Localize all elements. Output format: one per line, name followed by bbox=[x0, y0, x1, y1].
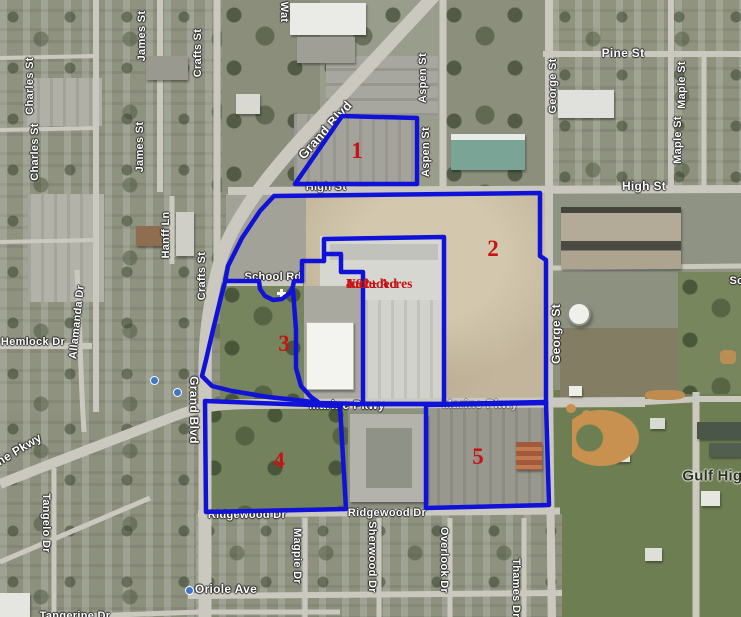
parcel-5-outline bbox=[426, 403, 549, 508]
parcel-outlines bbox=[0, 0, 741, 617]
excluded-parcel-outline bbox=[324, 237, 444, 404]
step-connector-outline bbox=[302, 261, 324, 281]
grand-blvd-marine-outline bbox=[202, 282, 546, 404]
parcel-3-east-outline bbox=[293, 290, 318, 402]
parcel-4-outline bbox=[205, 401, 346, 512]
parcel-1-outline bbox=[295, 116, 417, 184]
aerial-parcel-map: Charles StCharles StJames StJames StCraf… bbox=[0, 0, 741, 617]
school-rd-notch-outline bbox=[225, 281, 302, 300]
